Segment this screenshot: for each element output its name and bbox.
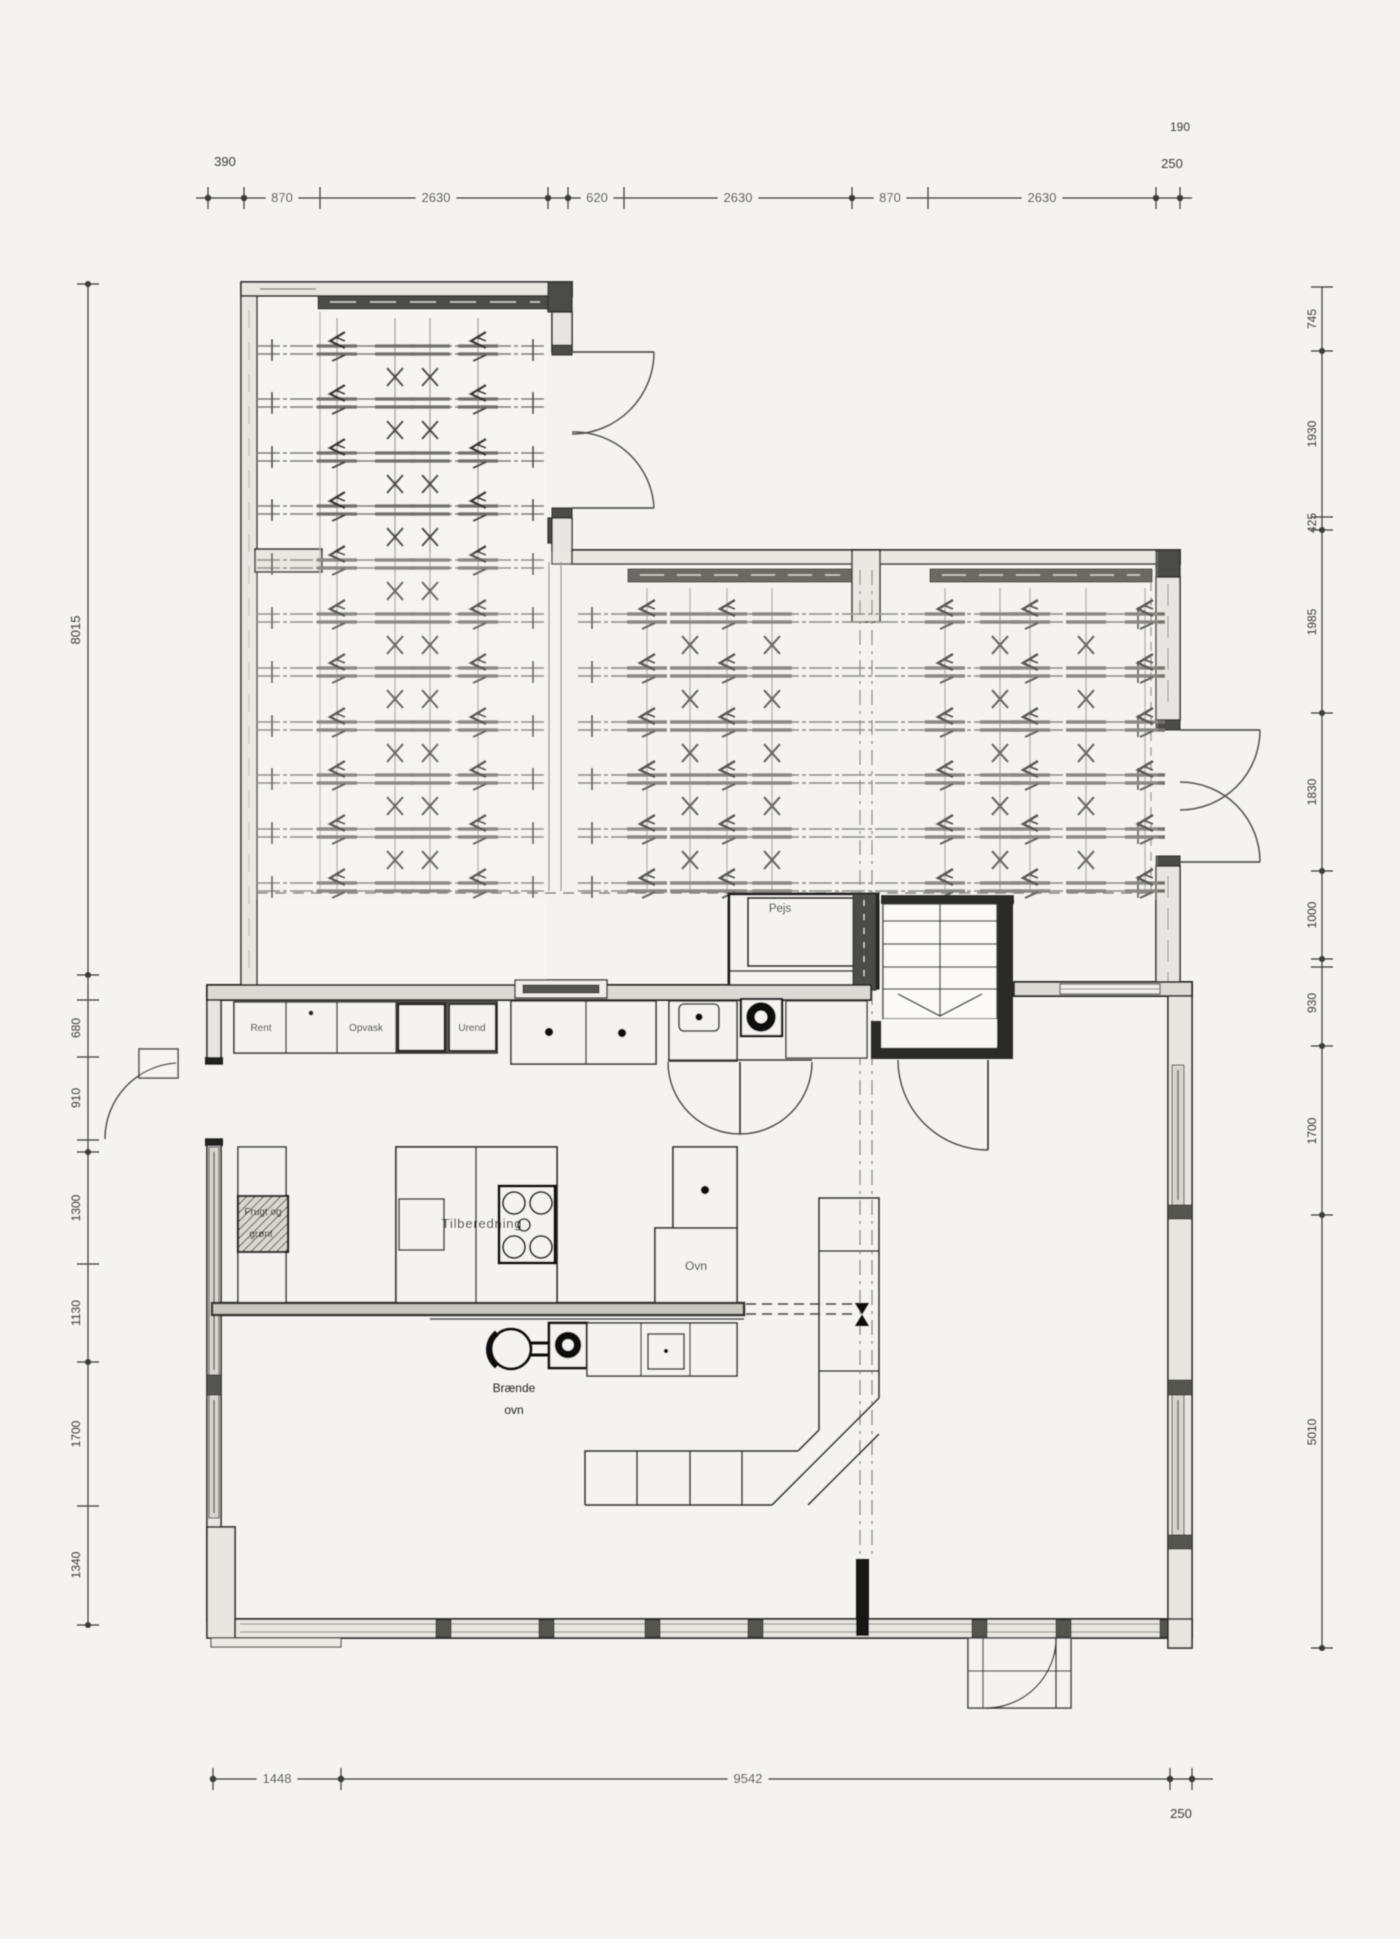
svg-text:870: 870 [879, 190, 901, 205]
svg-text:1700: 1700 [1305, 1117, 1319, 1144]
svg-text:390: 390 [214, 154, 236, 169]
svg-text:620: 620 [586, 190, 608, 205]
svg-text:1830: 1830 [1305, 778, 1319, 805]
svg-text:Ovn: Ovn [685, 1259, 707, 1273]
svg-text:Opvask: Opvask [349, 1023, 384, 1034]
svg-text:ovn: ovn [504, 1403, 523, 1417]
svg-text:1130: 1130 [69, 1300, 83, 1326]
svg-text:870: 870 [271, 190, 293, 205]
svg-text:745: 745 [1305, 309, 1319, 329]
svg-text:5010: 5010 [1305, 1418, 1319, 1445]
svg-text:1700: 1700 [69, 1420, 83, 1447]
svg-text:Brænde: Brænde [493, 1381, 536, 1395]
svg-text:Urend: Urend [458, 1023, 485, 1034]
svg-text:1448: 1448 [263, 1771, 292, 1786]
svg-text:Rent: Rent [250, 1023, 271, 1034]
svg-text:2630: 2630 [422, 190, 451, 205]
svg-text:1340: 1340 [69, 1551, 83, 1578]
svg-text:930: 930 [1305, 993, 1319, 1013]
svg-text:1985: 1985 [1305, 608, 1319, 635]
svg-text:425: 425 [1305, 513, 1319, 533]
svg-text:9542: 9542 [734, 1771, 763, 1786]
svg-text:250: 250 [1170, 1806, 1192, 1821]
svg-text:1930: 1930 [1305, 420, 1319, 447]
svg-text:Frugt og: Frugt og [244, 1207, 281, 1218]
svg-text:2630: 2630 [1028, 190, 1057, 205]
svg-text:2630: 2630 [724, 190, 753, 205]
svg-text:1300: 1300 [69, 1194, 83, 1221]
svg-text:910: 910 [69, 1088, 83, 1108]
svg-text:250: 250 [1161, 156, 1183, 171]
svg-text:1000: 1000 [1305, 901, 1319, 928]
svg-text:Tilberedning: Tilberedning [442, 1216, 523, 1231]
svg-text:grønt: grønt [249, 1229, 273, 1240]
svg-text:Pejs: Pejs [769, 903, 792, 915]
svg-text:190: 190 [1170, 120, 1190, 134]
svg-text:680: 680 [69, 1018, 83, 1038]
svg-text:8015: 8015 [68, 616, 83, 645]
